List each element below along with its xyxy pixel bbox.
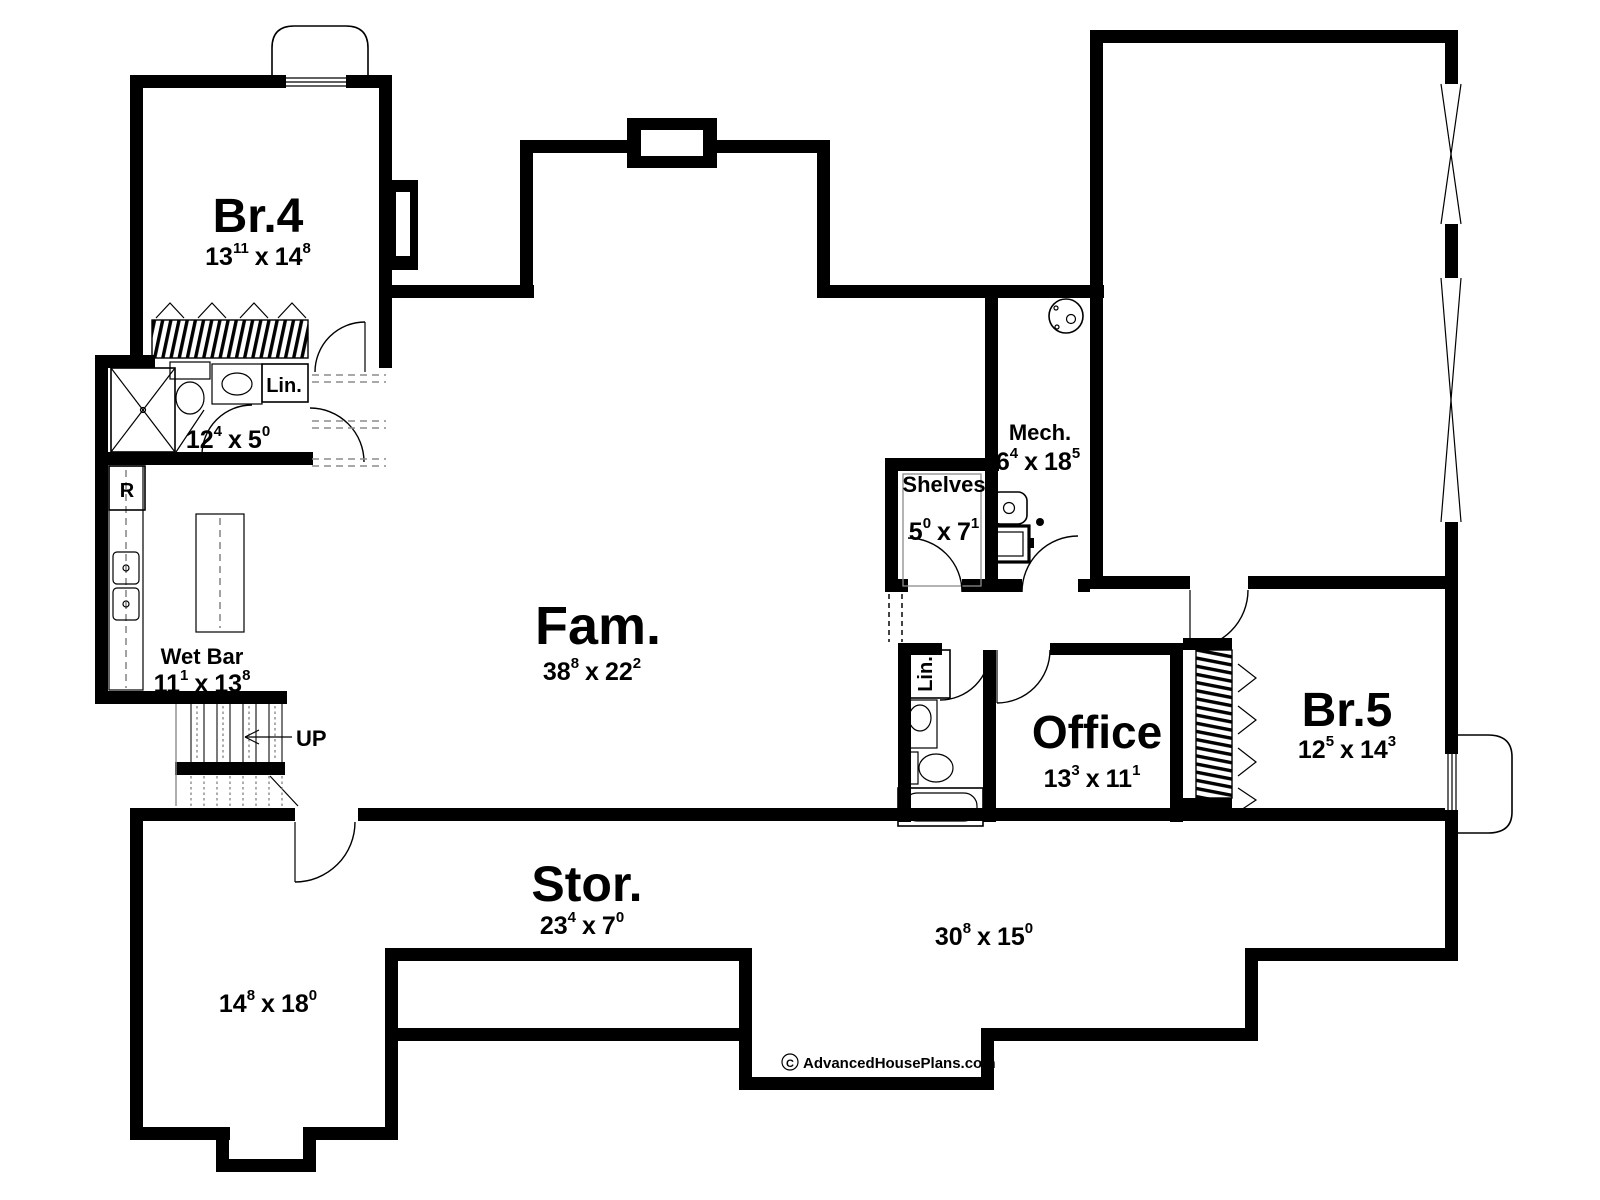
- br5-label: Br.5: [1302, 684, 1393, 737]
- br4-door: [315, 322, 365, 372]
- bath-dim: 124x50: [186, 423, 270, 454]
- hall-bath-door: [940, 650, 990, 700]
- stor-left-dim: 148x180: [219, 987, 317, 1018]
- copyright-symbol: C: [786, 1058, 794, 1070]
- bath-hall-door: [310, 408, 364, 462]
- stair-door: [270, 776, 298, 806]
- storage-door: [295, 822, 355, 882]
- floor-plan-drawing: Br.4 1311x148 124x50 Lin. Wet Bar 111x13…: [0, 0, 1600, 1200]
- x-brace-window-lower: [1441, 278, 1461, 522]
- linen-bath-label: Lin.: [266, 375, 302, 397]
- doors: [176, 322, 1248, 882]
- stor-label: Stor.: [531, 856, 642, 912]
- mech-dim: 64x185: [996, 445, 1080, 476]
- wet-bar-label: Wet Bar: [161, 644, 244, 669]
- soffit-lines: [312, 375, 386, 466]
- window-well-br4: [272, 26, 368, 80]
- mech-label: Mech.: [1009, 420, 1071, 445]
- fridge-label: R: [120, 480, 135, 502]
- stor-dim: 234x70: [540, 909, 624, 940]
- room-labels: Br.4 1311x148 124x50 Lin. Wet Bar 111x13…: [120, 190, 1396, 1018]
- stairs: [176, 704, 292, 806]
- br5-closet: [1196, 650, 1256, 812]
- shelves-dim: 50x71: [909, 515, 979, 546]
- toilet-bath1: [170, 362, 210, 414]
- fixtures: [109, 299, 1083, 826]
- br4-dim: 1311x148: [205, 240, 311, 271]
- up-label: UP: [296, 726, 327, 751]
- br5-dim: 125x143: [1298, 733, 1396, 764]
- stor-right-dim: 308x150: [935, 920, 1033, 951]
- shower: [111, 368, 175, 452]
- br4-label: Br.4: [213, 190, 304, 243]
- office-door: [997, 650, 1050, 703]
- floor-plan-page: Br.4 1311x148 124x50 Lin. Wet Bar 111x13…: [0, 0, 1600, 1200]
- wet-bar-dim: 111x138: [154, 667, 251, 698]
- credit-line: C AdvancedHousePlans.com: [782, 1054, 996, 1072]
- water-heater: [1049, 299, 1083, 333]
- shelves-label: Shelves: [902, 472, 985, 497]
- shelves-door: [908, 538, 962, 592]
- credit-text: AdvancedHousePlans.com: [803, 1055, 996, 1072]
- office-label: Office: [1032, 706, 1162, 758]
- linen-hall-label: Lin.: [915, 656, 937, 692]
- fam-dim: 388x222: [543, 655, 641, 686]
- vanity-bath1: [212, 364, 262, 404]
- fam-label: Fam.: [535, 596, 661, 656]
- br4-closet: [152, 303, 308, 358]
- window-well-br5: [1458, 735, 1512, 833]
- office-dim: 133x111: [1044, 762, 1141, 793]
- floor-drain: [1036, 518, 1044, 526]
- x-brace-window-upper: [1441, 84, 1461, 224]
